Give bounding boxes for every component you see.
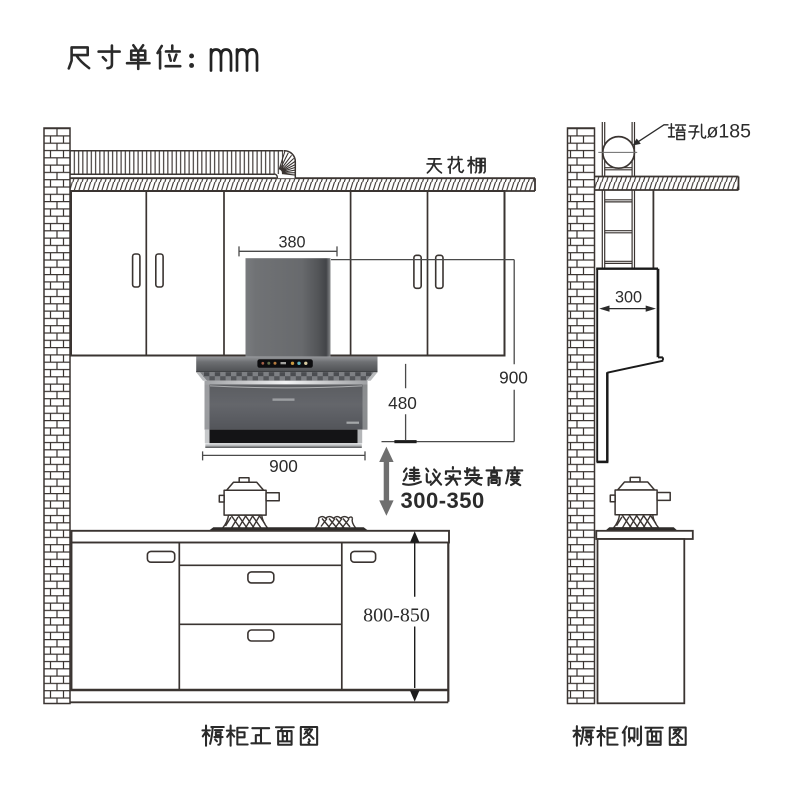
svg-text:800-850: 800-850 <box>363 604 430 626</box>
svg-text:480: 480 <box>388 393 417 413</box>
svg-text:380: 380 <box>278 233 305 251</box>
svg-text:300-350: 300-350 <box>401 488 485 513</box>
svg-text:300: 300 <box>615 289 642 307</box>
svg-text:900: 900 <box>499 368 528 388</box>
svg-text:ø185: ø185 <box>707 121 752 143</box>
svg-text:900: 900 <box>269 456 298 476</box>
